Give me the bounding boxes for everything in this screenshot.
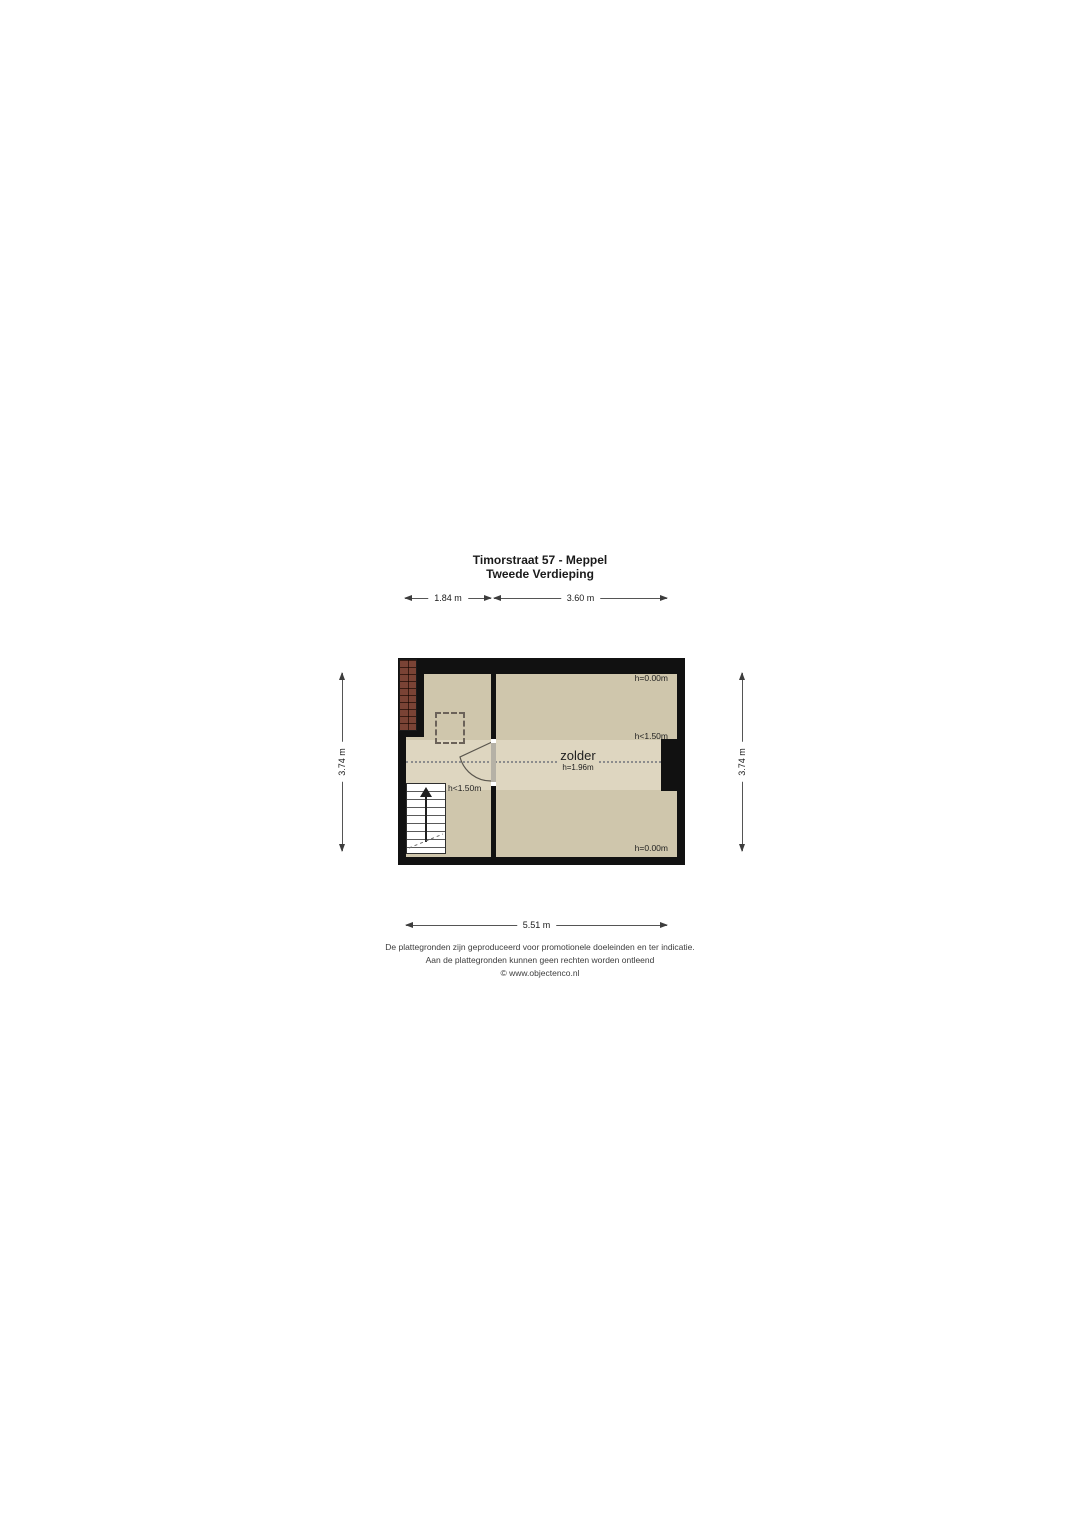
dimension-label: 3.74 m <box>737 742 747 782</box>
page-title: Timorstraat 57 - Meppel <box>0 553 1080 567</box>
arrow-down-icon <box>339 844 345 852</box>
interior-wall-upper <box>491 674 496 742</box>
room-name-text: zolder <box>558 748 597 763</box>
dimension-left: 3.74 m <box>336 672 348 852</box>
door-leaf <box>491 742 496 783</box>
page-subtitle: Tweede Verdieping <box>0 567 1080 581</box>
height-annotation-top-right: h=0.00m <box>635 673 668 683</box>
height-annotation-bottom-right: h=0.00m <box>635 843 668 853</box>
floorplan-page: Timorstraat 57 - Meppel Tweede Verdiepin… <box>0 0 1080 1527</box>
floorplan-drawing: h=0.00m h<1.50m h<1.50m h=0.00m zolder h… <box>398 658 685 865</box>
chimney-block <box>661 739 685 791</box>
room-label: zolder <box>528 748 628 763</box>
arrow-right-icon <box>660 922 668 928</box>
door-hinge-bottom <box>491 782 496 786</box>
arrow-right-icon <box>660 595 668 601</box>
dimension-label: 1.84 m <box>428 593 468 603</box>
staircase <box>406 783 446 854</box>
arrow-left-icon <box>493 595 501 601</box>
dimension-right: 3.74 m <box>736 672 748 852</box>
height-annotation-mid-left: h<1.50m <box>448 783 481 793</box>
dimension-bottom: 5.51 m <box>405 919 668 931</box>
stairs-cut-line-icon <box>407 784 445 853</box>
title-block: Timorstraat 57 - Meppel Tweede Verdiepin… <box>0 553 1080 581</box>
arrow-right-icon <box>484 595 492 601</box>
door-swing-arc-icon <box>454 738 496 786</box>
arrow-left-icon <box>405 922 413 928</box>
interior-wall-lower <box>491 783 496 857</box>
footer-line-1: De plattegronden zijn geproduceerd voor … <box>0 941 1080 954</box>
dimension-label: 5.51 m <box>517 920 557 930</box>
arrow-down-icon <box>739 844 745 852</box>
roof-tiles-icon <box>399 659 417 731</box>
arrow-up-icon <box>339 672 345 680</box>
room-height-label: h=1.96m <box>528 763 628 772</box>
door-hinge-top <box>491 739 496 743</box>
dimension-top-left: 1.84 m <box>404 592 492 604</box>
dimension-label: 3.74 m <box>337 742 347 782</box>
arrow-left-icon <box>404 595 412 601</box>
height-annotation-mid-right: h<1.50m <box>635 731 668 741</box>
dimension-label: 3.60 m <box>561 593 601 603</box>
room-height-text: h=1.96m <box>560 763 595 772</box>
footer-disclaimer: De plattegronden zijn geproduceerd voor … <box>0 941 1080 980</box>
arrow-up-icon <box>739 672 745 680</box>
dimension-top-right: 3.60 m <box>493 592 668 604</box>
footer-copyright: © www.objectenco.nl <box>0 967 1080 980</box>
footer-line-2: Aan de plattegronden kunnen geen rechten… <box>0 954 1080 967</box>
